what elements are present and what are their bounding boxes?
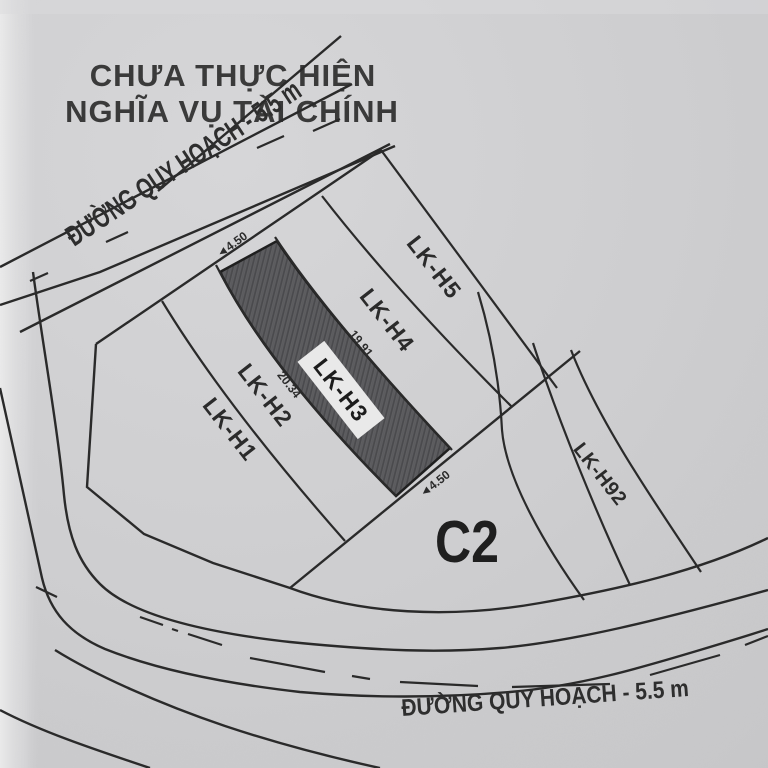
- svg-text:CHƯA THỰC HIỆN: CHƯA THỰC HIỆN: [90, 57, 376, 93]
- svg-text:C2: C2: [435, 509, 499, 575]
